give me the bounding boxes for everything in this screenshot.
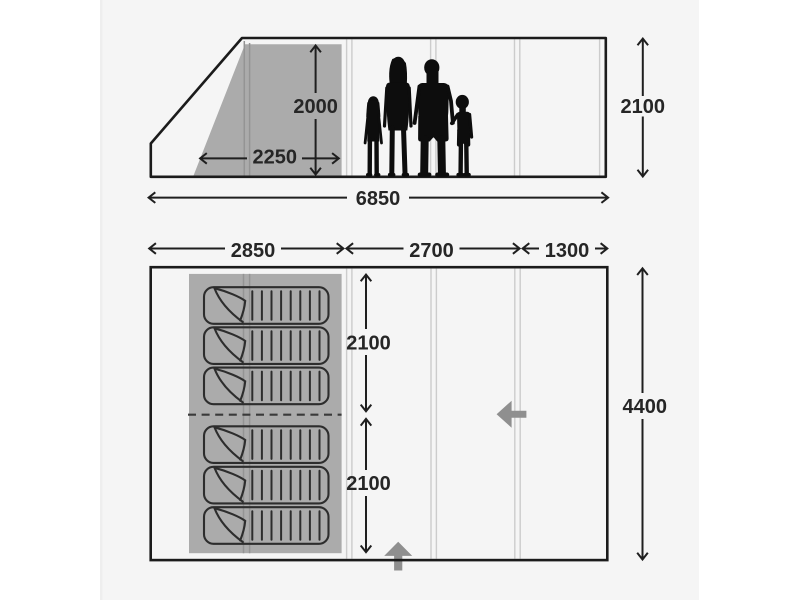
svg-text:2100: 2100 <box>346 333 391 355</box>
svg-text:2000: 2000 <box>293 96 338 118</box>
svg-text:2100: 2100 <box>621 96 666 118</box>
svg-text:2700: 2700 <box>409 240 454 262</box>
svg-text:6850: 6850 <box>356 188 401 210</box>
svg-text:2850: 2850 <box>231 240 276 262</box>
svg-text:2250: 2250 <box>253 146 298 168</box>
svg-text:1300: 1300 <box>545 240 590 262</box>
svg-text:4400: 4400 <box>623 396 668 418</box>
svg-text:2100: 2100 <box>346 473 391 495</box>
